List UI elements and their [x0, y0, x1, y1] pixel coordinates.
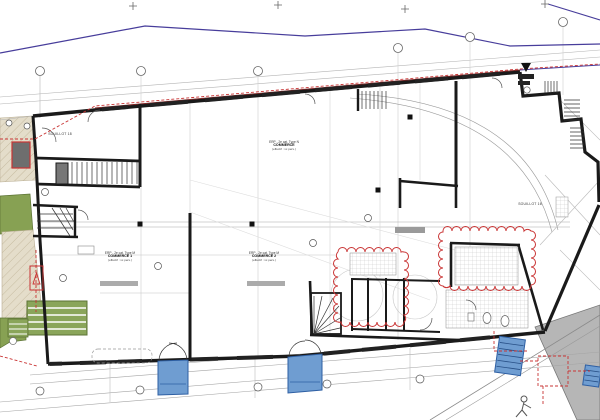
entrance-vestibules	[158, 336, 600, 395]
exterior-stair-blue	[495, 336, 526, 375]
survey-cross-icon	[129, 0, 549, 13]
unit-top-capacity: (effectif : xx pers.)	[258, 148, 310, 151]
stair-main	[56, 162, 137, 184]
stair-top-right	[545, 81, 584, 148]
floorplan-canvas: SOUILLOT 18 SOUILLOT 16 ERP - 2e cat. Ty…	[0, 0, 600, 420]
unit-label-left: ERP - 2e cat. Type M COMMERCE 1 (effecti…	[94, 252, 146, 263]
exterior-stair-blue-right	[583, 365, 600, 387]
parcel-label-right: SOUILLOT 16	[508, 203, 552, 207]
columns	[138, 115, 413, 227]
parcel-label-left: SOUILLOT 18	[40, 133, 80, 137]
sink-fixture	[468, 313, 474, 321]
planter-box	[12, 142, 30, 168]
core-rooms-hatched	[350, 247, 528, 328]
unit-mid-capacity: (effectif : xx pers.)	[238, 259, 290, 262]
person-icon	[516, 396, 531, 417]
shopfront-windows-bottom	[50, 337, 490, 364]
site-boundary-lines	[0, 0, 600, 70]
door-swings	[42, 78, 502, 330]
wc-fixture	[501, 316, 509, 327]
grid-bubbles	[36, 18, 568, 76]
unit-left-capacity: (effectif : xx pers.)	[94, 259, 146, 262]
unit-label-top: ERP - 2e cat. Type N COMMERCE (effectif …	[258, 141, 310, 152]
entrance-vestibule-right	[288, 354, 322, 393]
unit-label-mid: ERP - 2e cat. Type M COMMERCE 2 (effecti…	[238, 252, 290, 263]
north-triangle-icon	[521, 63, 531, 72]
entrance-vestibule-left	[158, 360, 188, 395]
floorplan-drawing	[0, 0, 600, 420]
wc-fixture	[483, 313, 491, 324]
